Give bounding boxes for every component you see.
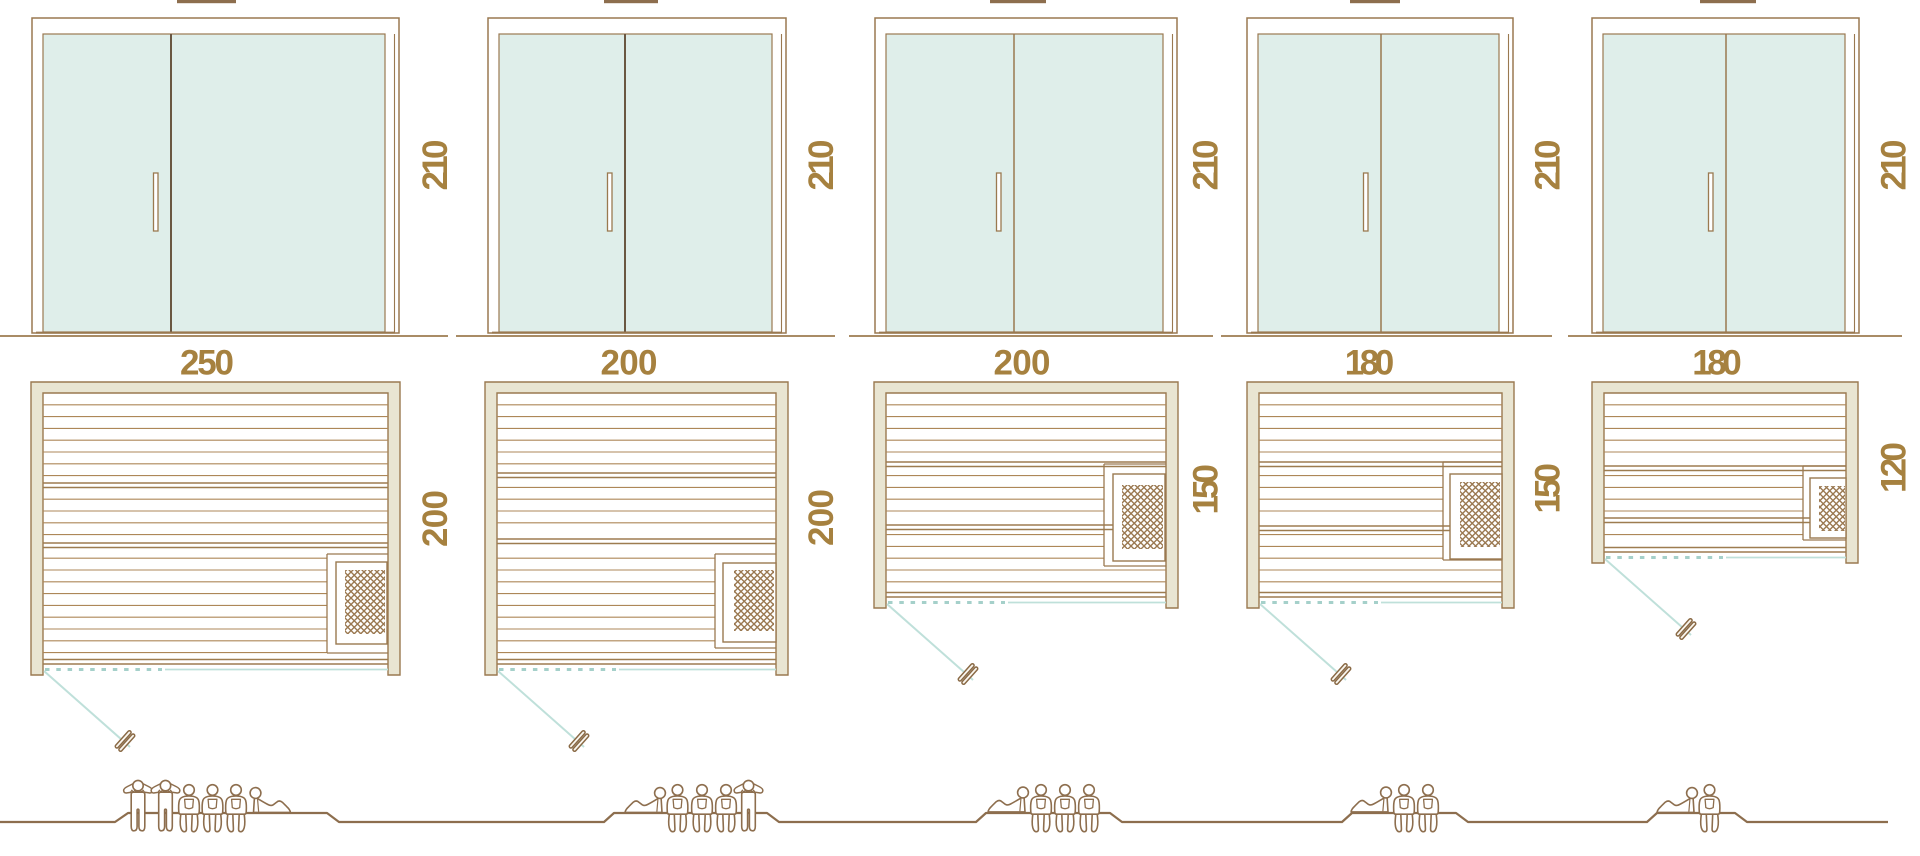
svg-text:210: 210 [1875,140,1914,191]
svg-text:210: 210 [1187,140,1226,191]
svg-text:210: 210 [416,140,455,191]
svg-text:150: 150 [1529,463,1568,514]
svg-text:200: 200 [994,344,1051,383]
svg-text:120: 120 [1875,442,1914,493]
svg-text:250: 250 [180,344,234,383]
svg-text:180: 180 [1345,344,1395,383]
svg-text:200: 200 [601,344,658,383]
svg-text:150: 150 [1187,464,1226,515]
svg-text:210: 210 [1529,140,1568,191]
svg-text:200: 200 [416,490,455,547]
svg-text:180: 180 [1692,344,1742,383]
svg-text:210: 210 [802,140,841,191]
svg-text:200: 200 [802,489,841,546]
